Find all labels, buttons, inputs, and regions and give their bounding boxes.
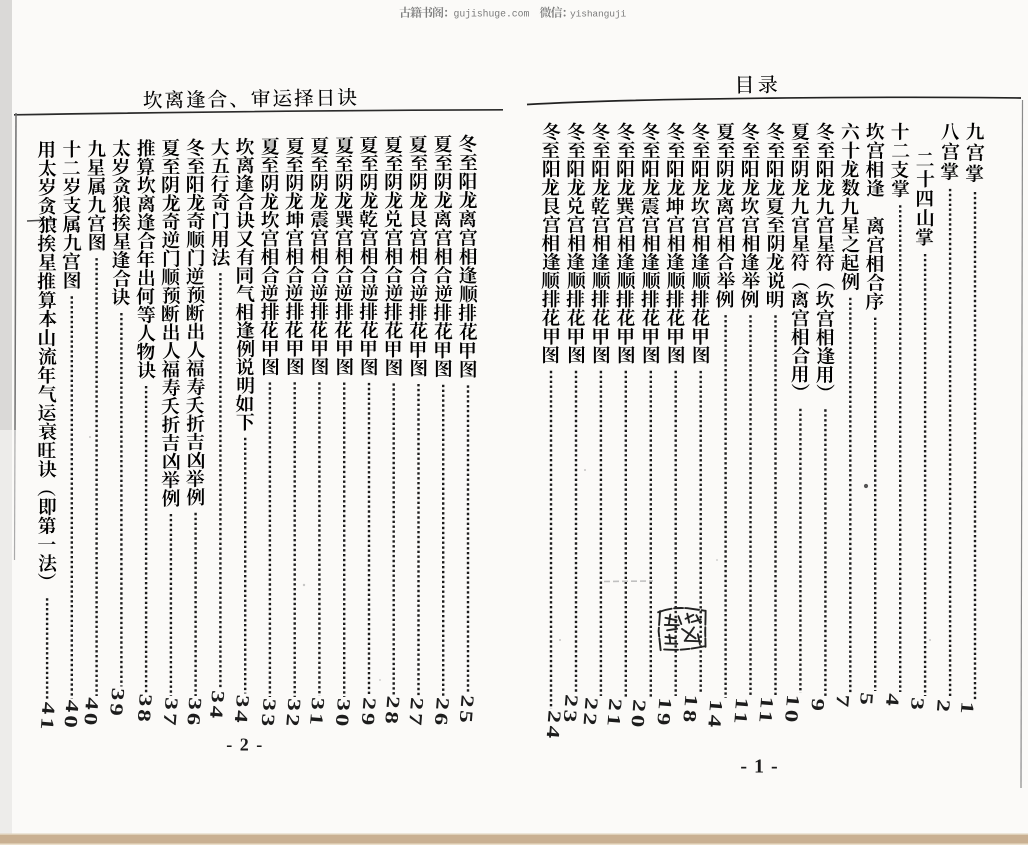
svg-text:22: 22 xyxy=(579,697,602,729)
svg-text:27: 27 xyxy=(405,697,428,729)
svg-text:20: 20 xyxy=(627,699,650,731)
svg-text:11: 11 xyxy=(730,697,753,728)
svg-text:28: 28 xyxy=(381,695,404,727)
svg-text:24: 24 xyxy=(542,710,565,742)
svg-text:4: 4 xyxy=(882,693,904,710)
svg-text:40: 40 xyxy=(60,699,83,731)
svg-text:- 2 -: - 2 - xyxy=(226,735,264,755)
svg-text:gujishuge.com: gujishuge.com xyxy=(454,8,530,19)
svg-text:34: 34 xyxy=(206,690,229,722)
svg-text:37: 37 xyxy=(159,697,182,729)
svg-text:34: 34 xyxy=(230,694,253,726)
svg-text:25: 25 xyxy=(455,694,478,726)
svg-text:21: 21 xyxy=(603,698,626,730)
svg-text:2: 2 xyxy=(932,699,954,716)
svg-text:33: 33 xyxy=(257,698,280,730)
svg-text:1: 1 xyxy=(956,701,978,718)
svg-text:30: 30 xyxy=(331,698,354,730)
svg-text:38: 38 xyxy=(133,693,156,725)
svg-text:10: 10 xyxy=(781,694,804,726)
svg-text:yishanguji: yishanguji xyxy=(570,8,626,19)
svg-text:3: 3 xyxy=(906,697,928,714)
svg-text:14: 14 xyxy=(704,699,727,731)
svg-text:36: 36 xyxy=(183,697,206,729)
svg-text:41: 41 xyxy=(36,701,59,733)
svg-text:32: 32 xyxy=(282,698,305,730)
svg-text:19: 19 xyxy=(653,697,676,729)
svg-text:5: 5 xyxy=(856,692,878,709)
svg-text:11: 11 xyxy=(755,696,778,727)
svg-text:18: 18 xyxy=(679,694,702,726)
svg-text:29: 29 xyxy=(357,697,380,729)
svg-text:39: 39 xyxy=(106,687,129,719)
svg-text:26: 26 xyxy=(430,697,453,729)
svg-text:7: 7 xyxy=(832,694,854,711)
svg-text:9: 9 xyxy=(807,698,829,715)
svg-text:31: 31 xyxy=(306,697,329,729)
svg-text:- 1 -: - 1 - xyxy=(740,756,778,778)
